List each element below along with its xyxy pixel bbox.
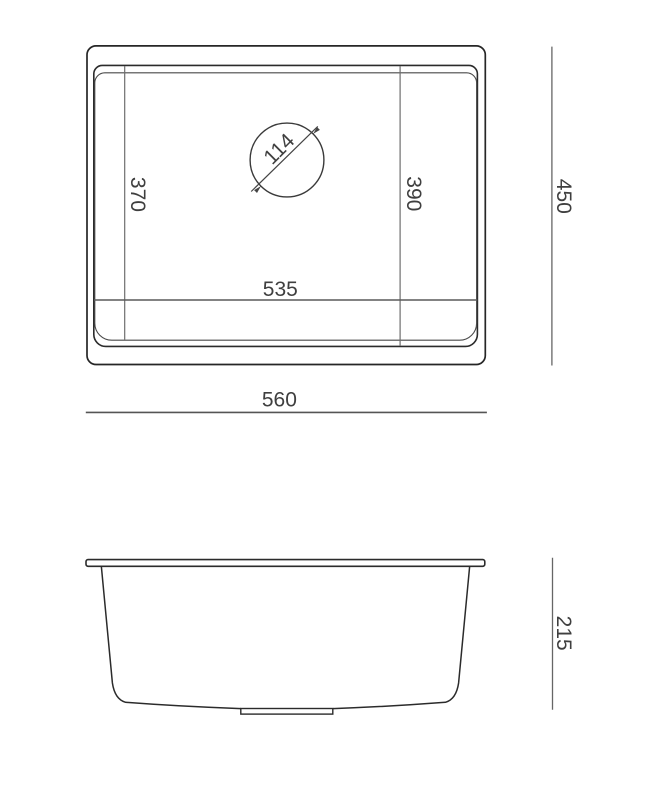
- svg-text:535: 535: [263, 278, 298, 301]
- svg-text:215: 215: [552, 616, 575, 651]
- svg-text:450: 450: [552, 179, 575, 214]
- svg-text:560: 560: [262, 388, 297, 411]
- svg-text:390: 390: [402, 176, 425, 211]
- svg-text:370: 370: [126, 177, 149, 212]
